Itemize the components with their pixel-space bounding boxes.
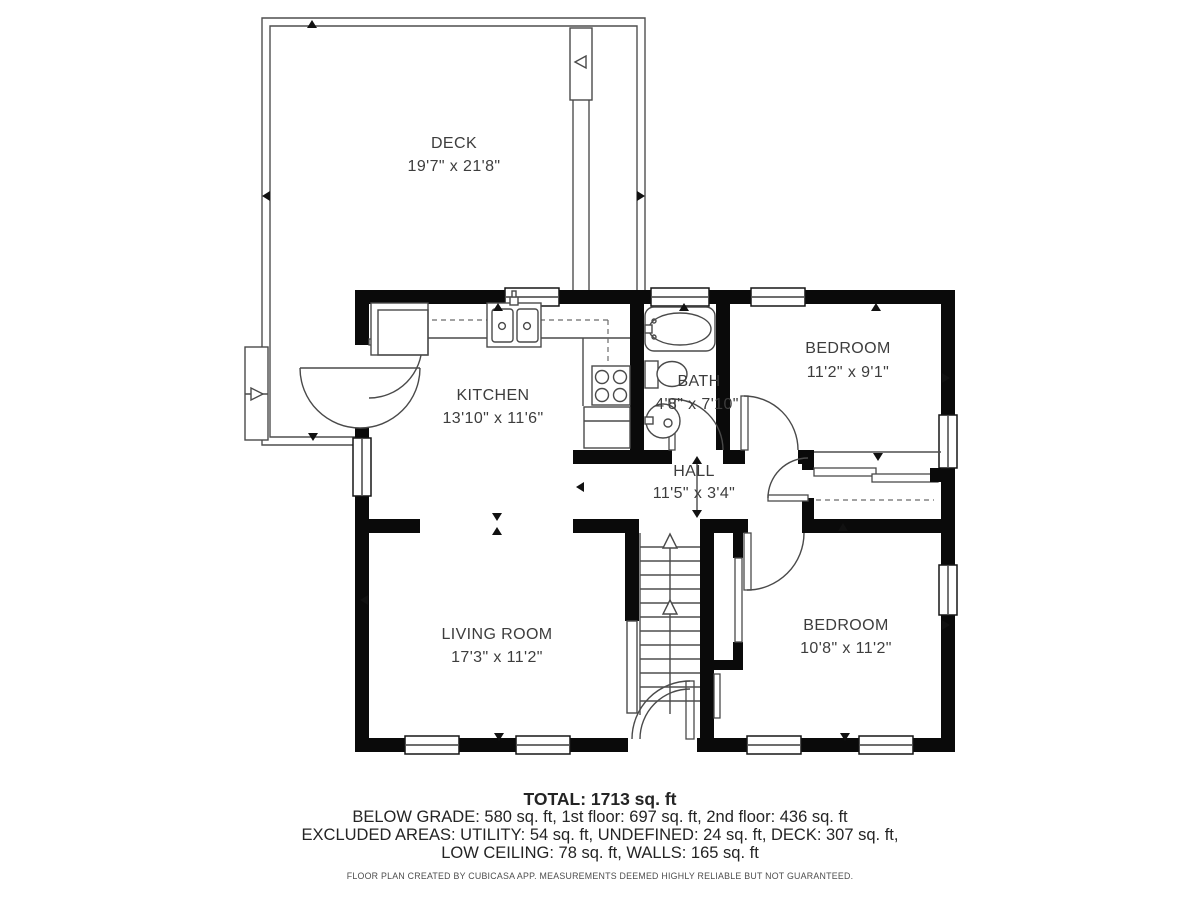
bath-dims: 4'8" x 7'10" — [655, 396, 739, 413]
stove — [592, 366, 630, 405]
floor-plan-page: DECK 19'7" x 21'8" KITCHEN 13'10" x 11'6… — [0, 0, 1200, 900]
bedroom1-dims: 11'2" x 9'1" — [807, 364, 889, 381]
understair-closet-doors — [714, 558, 742, 718]
bathtub — [645, 307, 715, 351]
total-area-text: TOTAL: 1713 sq. ft — [0, 789, 1200, 810]
bedroom2-door — [744, 533, 804, 590]
hall-dims: 11'5" x 3'4" — [653, 485, 735, 502]
deck-label: DECK — [431, 135, 477, 152]
deck-dims: 19'7" x 21'8" — [408, 158, 501, 175]
living-room-label: LIVING ROOM — [441, 626, 552, 643]
kitchen-label: KITCHEN — [456, 387, 529, 404]
living-room-dims: 17'3" x 11'2" — [451, 649, 543, 666]
hall-label: HALL — [673, 463, 715, 480]
excluded-areas-text: EXCLUDED AREAS: UTILITY: 54 sq. ft, UNDE… — [0, 826, 1200, 845]
bedroom1-door — [741, 396, 798, 450]
disclaimer-text: FLOOR PLAN CREATED BY CUBICASA APP. MEAS… — [0, 871, 1200, 881]
floor-plan: DECK 19'7" x 21'8" KITCHEN 13'10" x 11'6… — [0, 0, 1200, 900]
bedroom1-label: BEDROOM — [805, 340, 890, 357]
floor-areas-text: BELOW GRADE: 580 sq. ft, 1st floor: 697 … — [0, 808, 1200, 827]
bedroom2-label: BEDROOM — [803, 617, 888, 634]
excluded-areas-text-2: LOW CEILING: 78 sq. ft, WALLS: 165 sq. f… — [0, 844, 1200, 863]
deck-step — [245, 347, 268, 440]
exterior-door-openings — [353, 345, 697, 754]
refrigerator — [371, 303, 428, 355]
bedroom2-dims: 10'8" x 11'2" — [800, 640, 892, 657]
bath-label: BATH — [677, 373, 720, 390]
deck-post — [570, 28, 592, 100]
kitchen-dims: 13'10" x 11'6" — [442, 410, 543, 427]
entry-door — [632, 681, 694, 739]
